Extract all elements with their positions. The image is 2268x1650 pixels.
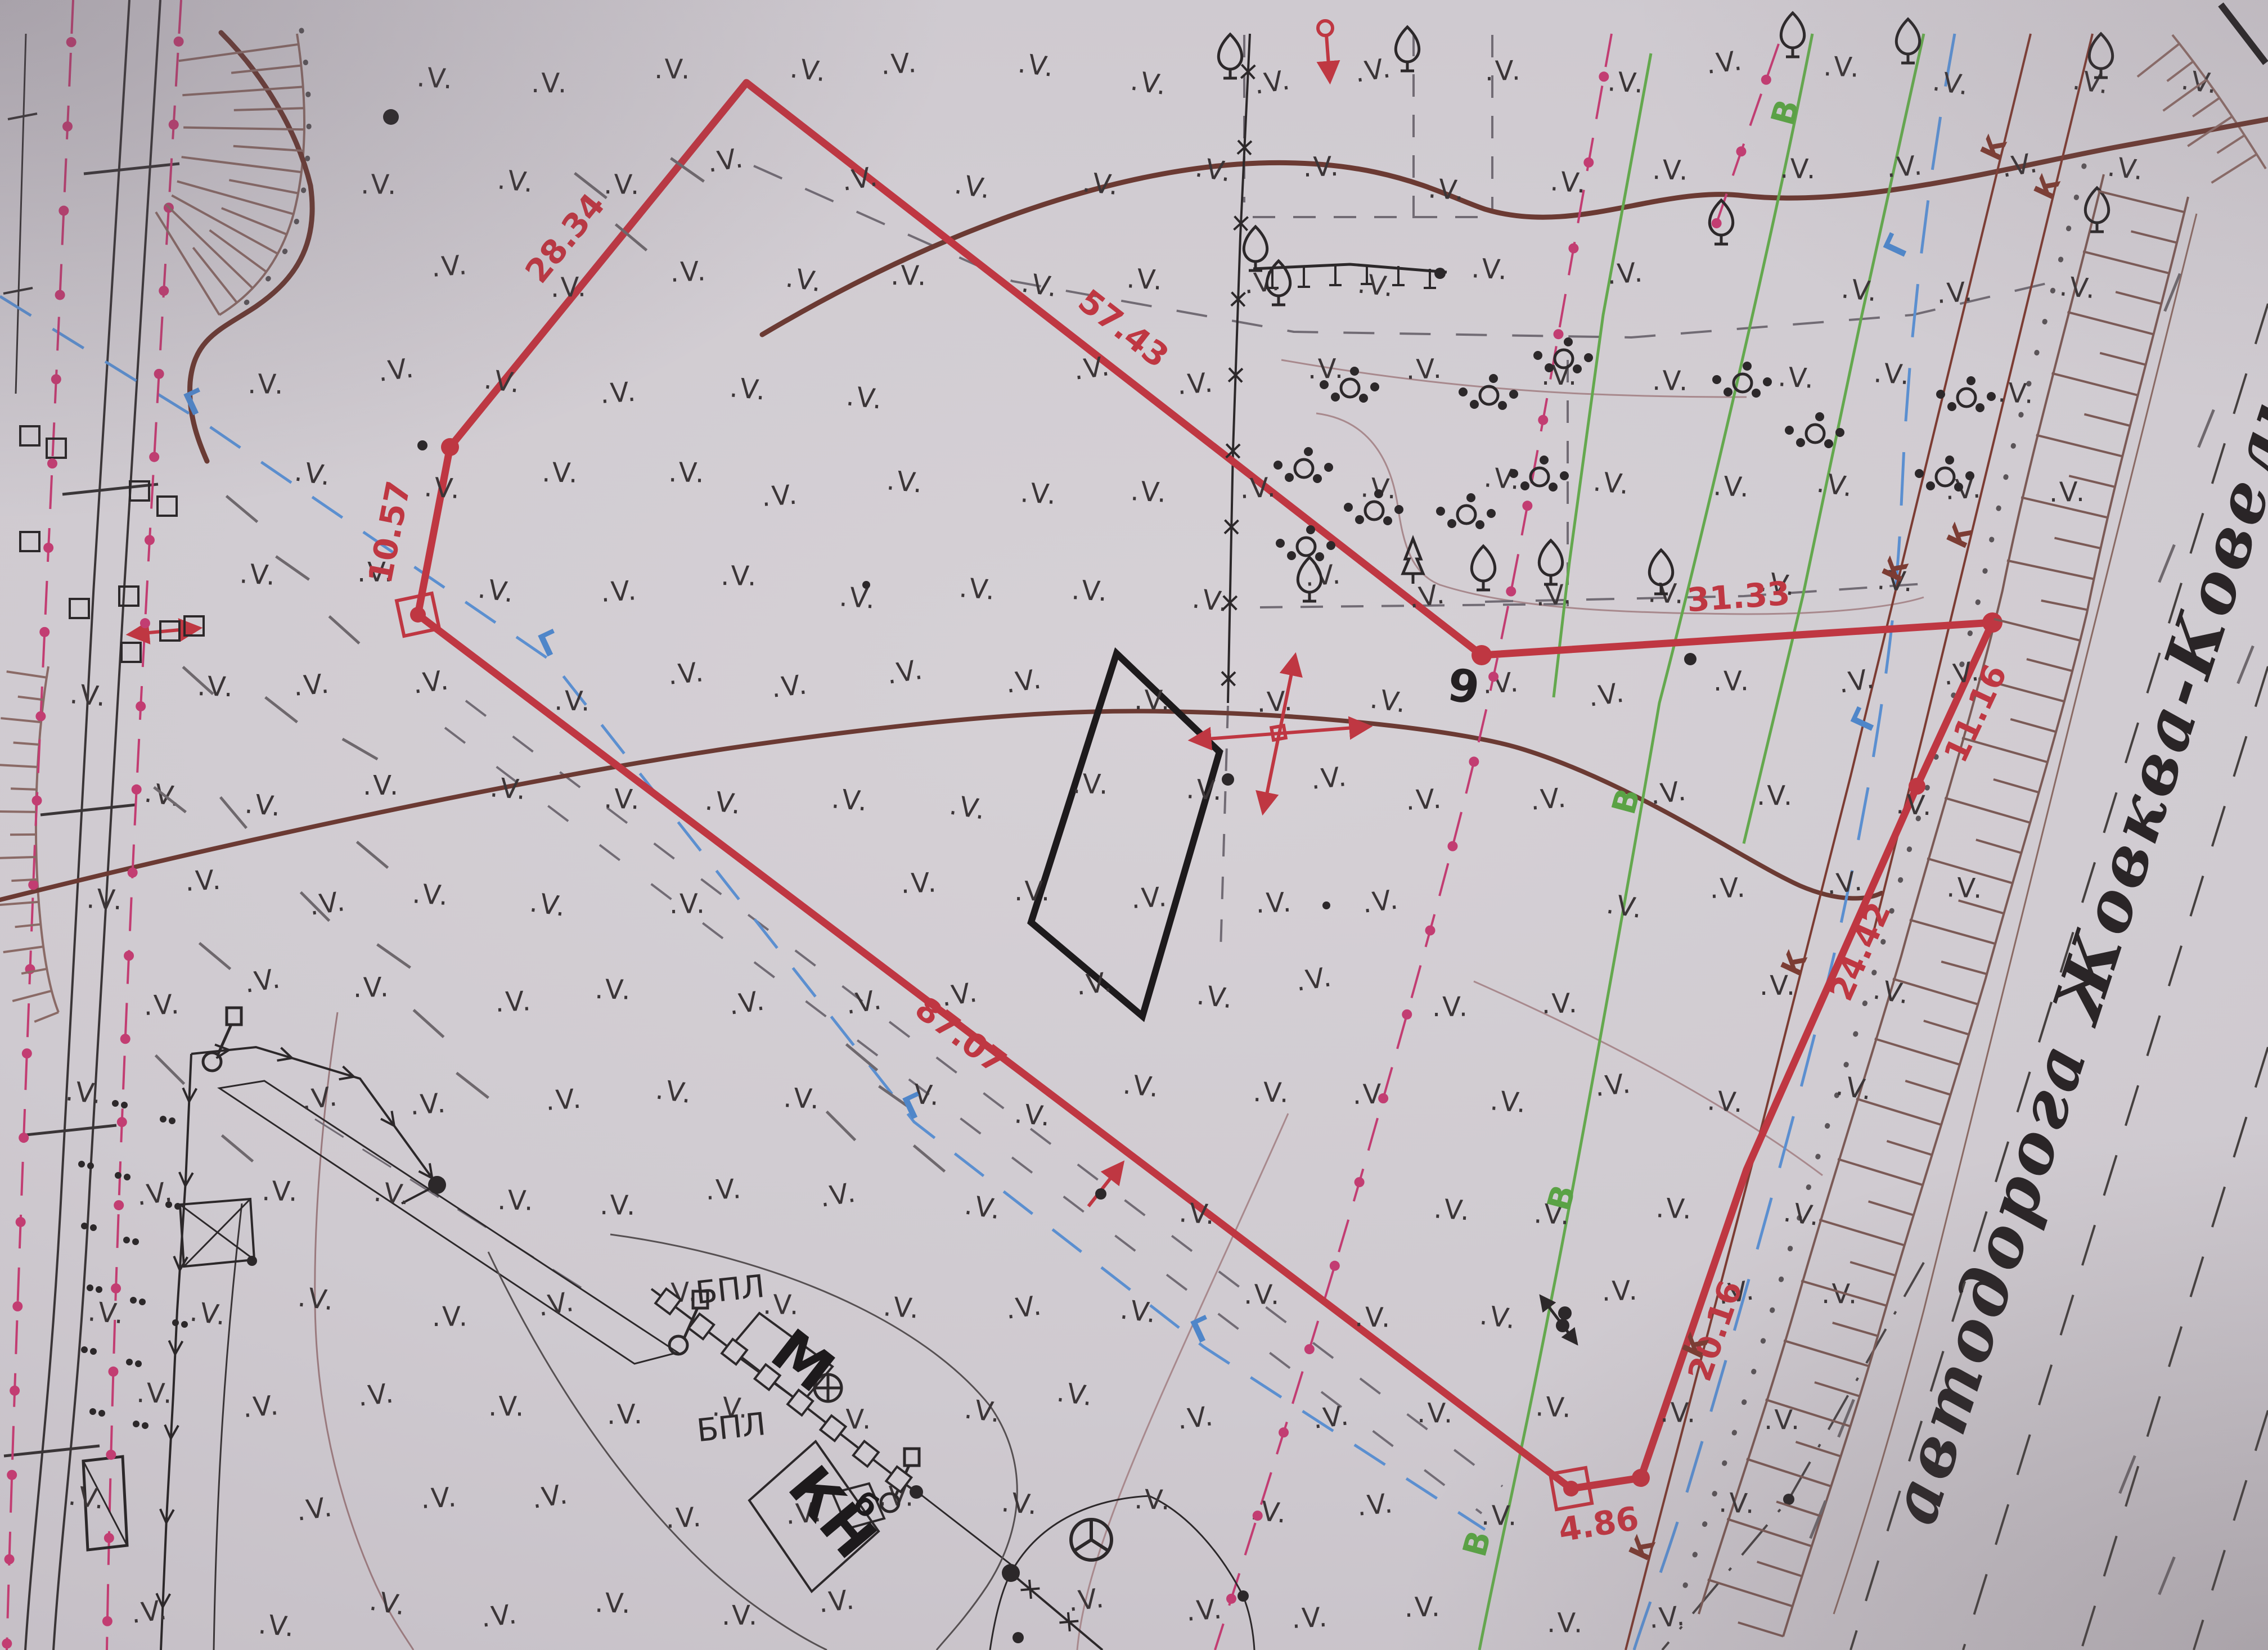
meadow-mark: .V. (668, 457, 706, 489)
power-pole-dot (12, 1301, 22, 1311)
marsh-dot (81, 1346, 88, 1353)
slope-tooth (1856, 1099, 1941, 1125)
slope-tooth (2212, 154, 2257, 183)
small-structure (119, 587, 138, 606)
power-pole-dot (136, 701, 146, 711)
point-dot (1684, 653, 1696, 665)
meadow-mark: .V. (1712, 470, 1751, 503)
meadow-mark: .V. (1195, 979, 1236, 1015)
slope-tooth (2010, 719, 2056, 732)
slope-tooth (210, 230, 267, 272)
meadow-mark: .V. (1134, 1484, 1172, 1516)
meadow-mark: .V. (244, 788, 283, 823)
meadow-mark: .V. (1191, 583, 1231, 618)
slope-tooth (1727, 1519, 1811, 1546)
meadow-mark: .V. (782, 1082, 821, 1115)
meadow-mark: .V. (482, 363, 523, 399)
bush-cluster-icon (1273, 447, 1333, 483)
meadow-mark: .V. (66, 1480, 107, 1516)
meadow-mark: .V. (2106, 151, 2146, 186)
power-pole-dot (114, 1200, 124, 1210)
deciduous-tree-icon (1218, 34, 1241, 78)
marsh-dot (181, 1321, 188, 1328)
meadow-mark: .V. (1253, 1076, 1291, 1109)
slope-tooth (0, 857, 37, 858)
slope-tooth (1905, 1081, 1950, 1095)
meadow-mark: .V. (494, 985, 533, 1018)
meadow-mark: .V. (817, 1584, 857, 1619)
meadow-mark: .V. (1601, 1275, 1639, 1308)
meadow-mark: .V. (1126, 263, 1165, 296)
gas-line-label: Г (533, 623, 566, 665)
meadow-mark: .V. (1592, 466, 1632, 501)
slope-tooth (2068, 312, 2154, 334)
point-dot (862, 581, 870, 589)
meadow-mark: .V. (1307, 353, 1345, 385)
meadow-mark: .V. (188, 1296, 229, 1332)
slope-tooth (1910, 920, 1995, 944)
slope-tooth (182, 87, 303, 95)
point-dot (1095, 1188, 1106, 1200)
small-structure (184, 616, 204, 635)
slope-tooth (2036, 435, 2122, 457)
bush-cluster-icon (1436, 493, 1496, 529)
slope-dash (222, 1135, 253, 1161)
marsh-dot (81, 1223, 88, 1229)
meadow-mark: .V. (479, 1598, 520, 1634)
meadow-mark: .V. (242, 963, 283, 999)
planned-building-outline (1031, 653, 1219, 1016)
meadow-mark: .V. (1134, 684, 1172, 716)
power-pole-dot (62, 121, 73, 132)
meadow-mark: .V. (262, 1175, 299, 1207)
meadow-mark: .V. (763, 1289, 800, 1321)
meadow-mark: .V. (1081, 166, 1121, 201)
meadow-mark: .V. (372, 1176, 413, 1211)
meadow-mark: .V. (1003, 1290, 1045, 1326)
deciduous-tree-icon (1896, 19, 1919, 63)
meadow-mark: .V. (489, 772, 529, 806)
meadow-mark: .V. (1130, 881, 1169, 915)
meadow-mark: .V. (535, 1286, 577, 1323)
meadow-mark: .V. (1815, 467, 1856, 503)
slope-tooth (156, 212, 219, 315)
meadow-mark: .V. (1000, 1486, 1040, 1521)
marsh-dot (126, 1359, 133, 1365)
meadow-mark: .V. (669, 888, 706, 920)
point-dot (1558, 1306, 1572, 1320)
slope-tooth (2027, 659, 2072, 671)
meadow-mark: .V. (1652, 365, 1690, 397)
meadow-mark: .V. (1481, 1500, 1519, 1532)
slope-dash (199, 943, 230, 969)
power-pole-dot (128, 868, 138, 878)
meadow-mark: .V. (238, 558, 278, 592)
area-label-bpl-2: БПЛ (695, 1406, 768, 1449)
meadow-mark: .V. (890, 260, 928, 292)
power-pole-dot (1554, 329, 1564, 339)
meadow-mark: .V. (1781, 1196, 1822, 1232)
meadow-mark: .V. (1885, 150, 1925, 184)
meadow-mark: .V. (1895, 788, 1934, 822)
marsh-dot (130, 1297, 137, 1304)
power-pole-dot (1304, 1344, 1315, 1354)
meadow-mark: .V. (843, 984, 885, 1020)
meadow-mark: .V. (361, 169, 398, 201)
slope-tooth (2054, 538, 2100, 548)
meadow-mark: .V. (1713, 665, 1750, 697)
fence-arrow-tick (179, 1172, 186, 1186)
point-dot (1237, 1590, 1249, 1602)
power-pole-dot (19, 1133, 29, 1143)
meadow-mark: .V. (669, 255, 708, 288)
meadow-mark: .V. (136, 1377, 174, 1410)
power-pole-dot (39, 627, 49, 637)
fence-tick (1021, 1588, 1040, 1590)
meadow-mark: .V. (604, 783, 642, 815)
meadow-mark: .V. (1311, 1400, 1352, 1435)
meadow-mark: .V. (1946, 872, 1984, 905)
slope-tooth (1945, 798, 2030, 823)
slope-dash (2159, 1557, 2175, 1595)
meadow-mark: .V. (1016, 47, 1057, 83)
meadow-mark: .V. (1185, 773, 1224, 807)
power-pole-dot (111, 1283, 121, 1293)
meadow-mark: .V. (1244, 1279, 1281, 1311)
slope-dash (329, 616, 359, 643)
vertex-label-9: 9 (1444, 659, 1483, 715)
meadow-mark: .V. (1405, 783, 1443, 817)
map-canvas: .V..V..V..V..V..V..V..V..V..V..V..V..V..… (0, 0, 2268, 1650)
small-structure (121, 643, 141, 662)
meadow-mark: .V. (294, 1491, 335, 1527)
meadow-mark: .V. (1871, 974, 1912, 1011)
slope-dash (343, 739, 377, 759)
meadow-mark: .V. (817, 1176, 859, 1214)
slope-dash (377, 944, 411, 967)
meadow-mark: .V. (1484, 55, 1522, 87)
meadow-mark: .V. (604, 169, 641, 201)
slope-tooth (2193, 98, 2220, 116)
slope-tooth (2084, 414, 2130, 426)
power-pole-dot (51, 374, 61, 384)
meadow-mark: .V. (528, 886, 569, 923)
marsh-dot (124, 1174, 130, 1180)
meadow-mark: .V. (705, 1173, 744, 1206)
meadow-mark: .V. (416, 61, 455, 96)
meadow-mark: .V. (1019, 477, 1059, 511)
meadow-mark: .V. (1529, 782, 1569, 817)
meadow-mark: .V. (654, 53, 692, 85)
slope-tooth (1976, 840, 2022, 853)
marsh-dot (139, 1299, 146, 1305)
power-pole-dot (1761, 75, 1771, 85)
slope-dash (1839, 1400, 1854, 1437)
slope-tooth (1924, 1021, 1969, 1034)
slope-tooth (193, 247, 237, 303)
power-pole-dot (1402, 1009, 1412, 1020)
meadow-mark: .V. (600, 1189, 637, 1221)
power-pole-dot (35, 711, 46, 722)
slope-tooth (13, 742, 39, 744)
marsh-dot (96, 1286, 102, 1293)
meadow-mark: .V. (257, 1608, 297, 1643)
meadow-mark: .V. (599, 376, 638, 409)
meadow-mark: .V. (1606, 66, 1645, 100)
power-pole-dot (1736, 146, 1746, 156)
power-pole-dot (1522, 501, 1532, 511)
slope-dash (226, 496, 257, 522)
meadow-mark: .V. (1706, 1085, 1745, 1119)
bush-cluster-icon (1459, 374, 1518, 410)
meadow-mark: .V. (1072, 768, 1110, 800)
power-pole-dot (1253, 1511, 1263, 1521)
slope-tooth (1815, 1382, 1860, 1396)
small-structure (20, 426, 39, 445)
power-pole-dot (22, 1048, 32, 1058)
power-pole-dot (32, 796, 42, 806)
small-structure (20, 532, 39, 551)
point-dot (383, 109, 399, 125)
slope-tooth (183, 128, 304, 130)
fence-arrow-tick (160, 1509, 166, 1523)
power-pole-dot (145, 535, 155, 545)
fence-arrow-tick (169, 1341, 175, 1355)
meadow-mark: .V. (85, 883, 124, 916)
slope-tooth (2137, 44, 2180, 77)
meadow-mark: .V. (1176, 1400, 1216, 1436)
meadow-mark: .V. (476, 572, 517, 609)
meadow-mark: .V. (1648, 1600, 1687, 1635)
power-pole-dot (159, 286, 169, 296)
meadow-mark: .V. (1074, 966, 1115, 1002)
deciduous-tree-icon (2085, 188, 2108, 232)
meadow-mark: .V. (411, 664, 452, 700)
meadow-mark: .V. (1604, 888, 1646, 925)
slope-tooth (179, 44, 299, 61)
slope-tooth (2083, 251, 2169, 273)
slope-tooth (229, 180, 298, 193)
power-pole-dot (120, 1034, 130, 1044)
meadow-mark: .V. (1655, 1192, 1694, 1225)
power-pole-dot (1506, 587, 1516, 597)
area-label-bpl-1: БПЛ (694, 1268, 767, 1311)
water-line-label: В (1455, 1527, 1498, 1561)
marsh-dot (123, 1237, 130, 1243)
map-labels: 28.3410.5787.074.8620.1624.4211.1631.335… (178, 96, 2268, 1571)
power-pole-dot (140, 618, 150, 628)
power-pole-dot (58, 206, 69, 216)
gas-line-label: Г (178, 382, 212, 423)
meadow-mark: .V. (947, 790, 989, 826)
meadow-mark: .V. (1304, 558, 1343, 593)
meadow-mark: .V. (432, 1301, 470, 1333)
power-pole-dot (10, 1386, 20, 1396)
slope-tooth (1776, 1502, 1821, 1516)
power-pole-dot (1330, 1261, 1340, 1271)
meadow-mark: .V. (1534, 1391, 1573, 1424)
slope-tooth (2098, 191, 2184, 213)
water-line (1479, 34, 1812, 1650)
meadow-mark: .V. (885, 465, 925, 499)
meadow-mark: .V. (420, 1481, 458, 1515)
meadow-mark: .V. (296, 1281, 337, 1317)
slope-tooth (1887, 1141, 1932, 1155)
meadow-mark: .V. (1119, 1293, 1159, 1329)
meadow-mark: .V. (1944, 472, 1983, 506)
meadow-mark: .V. (1128, 65, 1170, 101)
slope-tooth (1838, 1159, 1923, 1185)
meadow-mark: .V. (496, 164, 536, 199)
meadow-mark: .V. (703, 785, 744, 821)
meadow-mark: .V. (760, 479, 800, 513)
point-dot (1556, 1319, 1569, 1332)
meadow-mark: .V. (1780, 153, 1817, 185)
power-pole-dot (1378, 1093, 1388, 1103)
deciduous-tree-icon (1471, 546, 1495, 590)
meadow-mark: .V. (1586, 677, 1627, 713)
meadow-mark: .V. (544, 1083, 584, 1116)
meadow-mark: .V. (1840, 273, 1880, 308)
power-pole-dot (169, 120, 179, 130)
point-dot (1002, 1564, 1020, 1582)
slope-tooth (12, 991, 52, 1001)
power-pole-dot (1599, 71, 1609, 82)
marsh-dot (121, 1102, 128, 1108)
meadow-mark: .V. (830, 783, 870, 818)
gas-line-label: Г (1844, 703, 1885, 737)
meadow-mark: .V. (1718, 1487, 1757, 1520)
deciduous-tree-icon (1539, 540, 1562, 584)
slope-tooth (1875, 1039, 1960, 1065)
slope-dash (2199, 410, 2214, 448)
meadow-mark: .V. (1547, 1607, 1585, 1639)
slope-dash (2159, 545, 2175, 583)
meadow-mark: .V. (411, 878, 451, 912)
slope-tooth (18, 697, 44, 700)
point-dot (247, 1256, 257, 1266)
meadow-mark: .V. (1777, 361, 1816, 395)
power-pole-dot (1568, 244, 1578, 254)
marsh-dot (165, 1201, 172, 1208)
slope-tooth (231, 66, 301, 73)
power-pole-dot (108, 1367, 118, 1377)
meadow-mark: .V. (1066, 1582, 1107, 1618)
meadow-mark: .V. (1652, 154, 1690, 187)
power-pole-dot (28, 880, 38, 890)
power-pole-dot (104, 1533, 114, 1543)
meadow-mark: .V. (845, 380, 885, 416)
meadow-mark: .V. (1176, 367, 1216, 401)
marsh-dot (135, 1360, 142, 1367)
power-pole-dot (149, 452, 159, 462)
slope-tooth (2041, 601, 2087, 610)
slope-tooth (1795, 1442, 1840, 1457)
left-road (3, 0, 242, 1650)
meadow-mark: .V. (1997, 377, 2036, 410)
meadow-mark: .V. (1360, 472, 1398, 506)
slope-tooth (1850, 1262, 1896, 1275)
slope-tooth (2131, 231, 2177, 242)
marsh-dot (87, 1284, 93, 1291)
meadow-mark: .V. (1478, 1299, 1519, 1335)
meadow-mark: .V. (292, 668, 332, 702)
slope-tooth (0, 765, 38, 767)
slope-tooth (2052, 373, 2138, 395)
meadow-mark: .V. (1352, 52, 1394, 89)
marsh-dot (89, 1408, 96, 1415)
meadow-mark: .V. (129, 1594, 170, 1630)
slope-dash (276, 556, 309, 579)
meadow-mark: .V. (423, 471, 462, 505)
meadow-mark: .V. (87, 1296, 127, 1330)
meadow-mark: .V. (1303, 151, 1341, 183)
meadow-mark: .V. (839, 160, 881, 197)
fence-post (853, 1441, 879, 1467)
slope-tooth (234, 108, 304, 110)
bush-cluster-icon (1936, 376, 1996, 412)
meadow-mark: .V. (667, 656, 706, 691)
marsh-dot (172, 1319, 179, 1326)
meadow-mark: .V. (1648, 775, 1689, 811)
meadow-mark: .V. (880, 47, 919, 81)
fence-arrow-tick (174, 1256, 179, 1270)
survey-arrows (130, 21, 1368, 1206)
meadow-mark: .V. (356, 1377, 397, 1413)
point-dot (1322, 901, 1330, 909)
meadow-mark: .V. (1360, 883, 1401, 919)
meadow-mark: .V. (184, 864, 223, 898)
slope-tooth (1941, 962, 1987, 974)
marsh-dot (132, 1238, 139, 1245)
slope-tooth (1738, 1622, 1783, 1637)
meadow-mark: .V. (595, 1587, 633, 1620)
slope-tooth (1757, 1562, 1802, 1576)
power-pole-dot (106, 1450, 116, 1460)
power-pole-dot (1488, 671, 1498, 682)
meadow-mark: .V. (1594, 1068, 1633, 1103)
slope-dash (220, 797, 246, 828)
meadow-mark: .V. (838, 581, 877, 615)
marsh-dot (90, 1348, 97, 1355)
meadow-mark: .V. (1294, 961, 1335, 998)
meadow-mark: .V. (721, 560, 758, 592)
meadow-mark: .V. (1309, 761, 1349, 796)
meadow-mark: .V. (1178, 1197, 1217, 1231)
meadow-mark: .V. (1404, 1591, 1442, 1624)
slope-tooth (11, 788, 37, 790)
meadow-mark: .V. (143, 989, 182, 1022)
meadow-mark: .V. (769, 669, 810, 704)
marsh-dot (169, 1117, 175, 1124)
power-pole-dot (132, 785, 142, 795)
meadow-mark: .V. (2058, 271, 2098, 305)
power-pole-dot (1712, 218, 1722, 228)
meadow-mark: .V. (409, 1087, 448, 1121)
meadow-mark: .V. (497, 1184, 535, 1217)
small-structure (157, 497, 177, 516)
power-pole-dot (47, 458, 57, 468)
slope-dash (457, 1073, 489, 1098)
slope-tooth (15, 925, 41, 927)
survey-map-sheet: .V..V..V..V..V..V..V..V..V..V..V..V..V..… (0, 0, 2268, 1650)
meadow-mark: .V. (1822, 51, 1861, 84)
power-pole-dot (174, 37, 184, 47)
slope-tooth (3, 946, 43, 952)
fence-tick (1059, 1621, 1078, 1622)
meadow-mark: .V. (1836, 662, 1878, 699)
slope-tooth (1819, 1220, 1904, 1245)
